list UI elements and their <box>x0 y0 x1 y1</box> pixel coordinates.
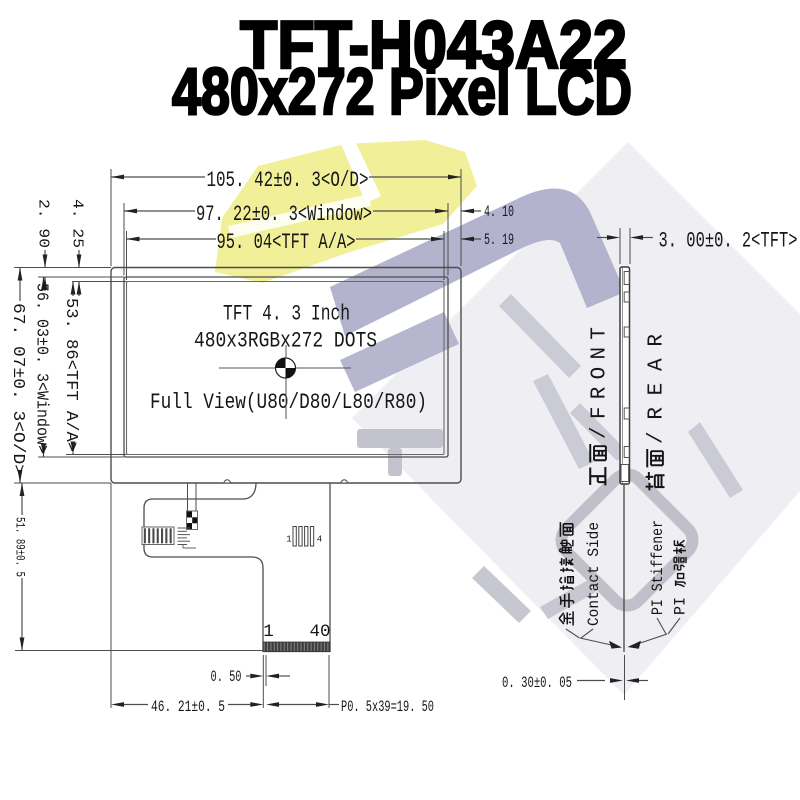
svg-text:Contact Side: Contact Side <box>585 522 603 626</box>
svg-text:TFT 4. 3 Inch: TFT 4. 3 Inch <box>223 301 350 327</box>
svg-text:P0. 5x39=19. 50: P0. 5x39=19. 50 <box>341 698 434 716</box>
svg-text:53. 86<TFT A/A>: 53. 86<TFT A/A> <box>62 298 81 452</box>
svg-text:97. 22±0. 3<Window>: 97. 22±0. 3<Window> <box>196 201 372 227</box>
svg-text:51. 89±0. 5: 51. 89±0. 5 <box>13 517 28 577</box>
svg-text:0. 30±0. 05: 0. 30±0. 05 <box>502 674 572 692</box>
svg-text:0. 50: 0. 50 <box>211 668 242 686</box>
svg-text:5. 19: 5. 19 <box>484 231 514 249</box>
svg-text:1: 1 <box>263 622 274 642</box>
svg-text:67. 07±0. 3<O/D>: 67. 07±0. 3<O/D> <box>9 303 28 475</box>
svg-text:4. 25: 4. 25 <box>69 199 86 248</box>
svg-text:46. 21±0. 5: 46. 21±0. 5 <box>151 698 225 716</box>
svg-text:1: 1 <box>286 535 291 545</box>
svg-text:40: 40 <box>309 622 330 642</box>
svg-text:Full View(U80/D80/L80/R80): Full View(U80/D80/L80/R80) <box>150 389 427 415</box>
svg-text:PI Stiffener: PI Stiffener <box>649 520 667 615</box>
svg-text:4. 10: 4. 10 <box>484 203 514 221</box>
svg-text:480x272 Pixel LCD: 480x272 Pixel LCD <box>172 54 632 128</box>
svg-text:PI: PI <box>672 597 690 615</box>
svg-text:2. 90: 2. 90 <box>35 199 52 248</box>
svg-text:95. 04<TFT A/A>: 95. 04<TFT A/A> <box>217 229 356 255</box>
svg-text:56. 03±0. 3<Window>: 56. 03±0. 3<Window> <box>33 283 52 454</box>
svg-text:3. 00±0. 2<TFT>: 3. 00±0. 2<TFT> <box>659 228 798 254</box>
svg-text:105. 42±0. 3<O/D>: 105. 42±0. 3<O/D> <box>207 167 369 193</box>
svg-text:4: 4 <box>317 535 322 545</box>
